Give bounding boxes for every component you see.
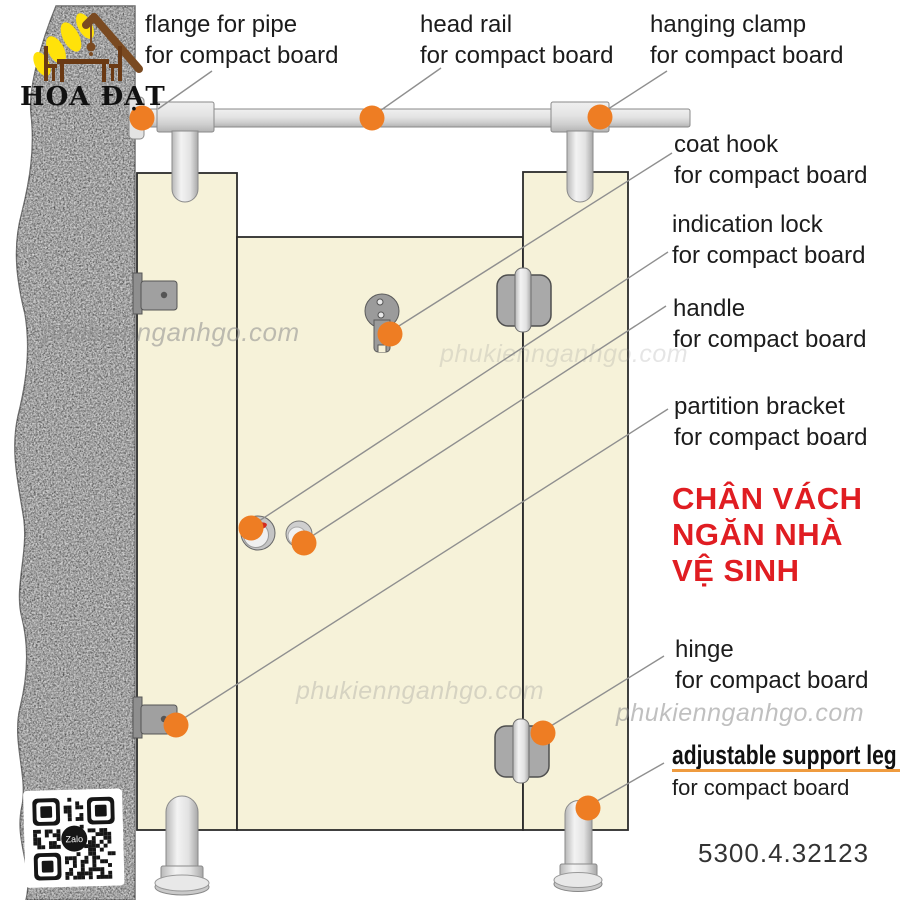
product-code: 5300.4.32123	[698, 838, 869, 869]
leader-head-rail	[374, 68, 441, 115]
callout-partition-bracket: partition bracket for compact board	[674, 391, 867, 453]
logo-text: HOA ĐẠT	[20, 82, 166, 112]
callout-hanging-clamp: hanging clamp for compact board	[650, 9, 843, 71]
heading-line-1: CHÂN VÁCH	[672, 481, 863, 517]
callout-hinge-subtitle: for compact board	[675, 665, 868, 696]
callout-coat-hook-subtitle: for compact board	[674, 160, 867, 191]
callout-hinge: hinge for compact board	[675, 634, 868, 696]
callout-handle-subtitle: for compact board	[673, 324, 866, 355]
callout-indication-lock: indication lock for compact board	[672, 209, 865, 271]
callout-support-leg-title: adjustable support leg	[672, 740, 897, 771]
marker-handle	[292, 531, 317, 556]
marker-indication-lock	[239, 516, 264, 541]
callout-head-rail: head rail for compact board	[420, 9, 613, 71]
watermark-wall: phukiennganhgo.com	[42, 317, 300, 348]
marker-hanging-clamp	[588, 105, 613, 130]
callout-indication-lock-subtitle: for compact board	[672, 240, 865, 271]
watermark-bottom-right: phukiennganhgo.com	[616, 699, 864, 728]
marker-head-rail	[360, 106, 385, 131]
callout-flange-subtitle: for compact board	[145, 40, 338, 71]
callout-hinge-title: hinge	[675, 634, 868, 665]
qr-code: Zalo	[23, 788, 125, 888]
callout-handle: handle for compact board	[673, 293, 866, 355]
callout-head-rail-title: head rail	[420, 9, 613, 40]
leader-hanging-clamp	[602, 71, 667, 113]
marker-support-leg	[576, 796, 601, 821]
wall	[15, 6, 135, 900]
heading-line-3: VỆ SINH	[672, 553, 863, 589]
support-leg-underline	[672, 769, 900, 772]
callout-partition-bracket-title: partition bracket	[674, 391, 867, 422]
heading-vietnamese: CHÂN VÁCH NGĂN NHÀ VỆ SINH	[672, 481, 863, 589]
marker-hinge	[531, 721, 556, 746]
hinge-top	[497, 268, 551, 332]
callout-hanging-clamp-subtitle: for compact board	[650, 40, 843, 71]
heading-line-2: NGĂN NHÀ	[672, 517, 863, 553]
callout-hanging-clamp-title: hanging clamp	[650, 9, 843, 40]
qr-badge-label: Zalo	[65, 834, 83, 844]
marker-partition-bracket	[164, 713, 189, 738]
callout-indication-lock-title: indication lock	[672, 209, 865, 240]
callout-coat-hook-title: coat hook	[674, 129, 867, 160]
callout-head-rail-subtitle: for compact board	[420, 40, 613, 71]
callout-handle-title: handle	[673, 293, 866, 324]
watermark-mid: phukiennganhgo.com	[440, 340, 688, 369]
marker-coat-hook	[378, 322, 403, 347]
watermark-bottom-center: phukiennganhgo.com	[296, 677, 544, 706]
callout-partition-bracket-subtitle: for compact board	[674, 422, 867, 453]
callout-support-leg-subtitle: for compact board	[672, 775, 849, 801]
callout-coat-hook: coat hook for compact board	[674, 129, 867, 191]
callout-flange-title: flange for pipe	[145, 9, 338, 40]
callout-flange: flange for pipe for compact board	[145, 9, 338, 71]
